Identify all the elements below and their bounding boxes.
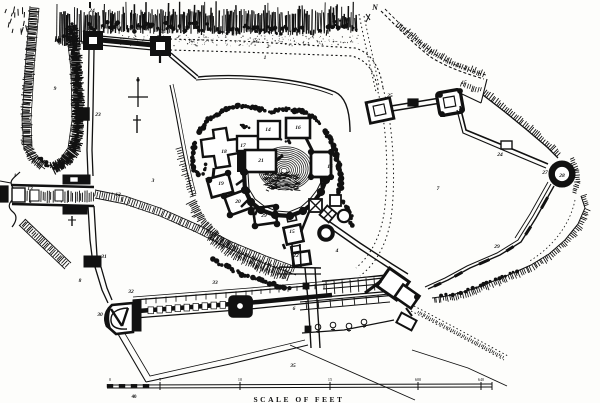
- svg-text:29: 29: [493, 244, 500, 250]
- svg-text:15: 15: [289, 229, 295, 235]
- svg-text:1: 1: [14, 173, 17, 179]
- svg-text:31: 31: [100, 254, 107, 260]
- svg-text:25: 25: [386, 93, 393, 99]
- svg-text:33: 33: [211, 280, 218, 286]
- svg-text:2: 2: [266, 44, 270, 50]
- svg-text:18: 18: [221, 149, 227, 155]
- svg-text:35: 35: [289, 363, 296, 369]
- svg-text:14: 14: [265, 127, 271, 133]
- svg-text:24: 24: [496, 152, 503, 158]
- svg-text:26: 26: [439, 113, 446, 119]
- svg-text:28: 28: [558, 173, 565, 179]
- svg-text:3: 3: [151, 178, 155, 184]
- svg-text:17: 17: [240, 143, 246, 149]
- svg-text:15: 15: [328, 377, 332, 382]
- svg-text:6: 6: [293, 306, 296, 312]
- svg-text:23: 23: [94, 112, 101, 118]
- svg-text:25: 25: [159, 29, 166, 35]
- svg-text:600: 600: [415, 377, 421, 382]
- svg-text:640: 640: [478, 377, 484, 382]
- svg-text:16: 16: [327, 164, 333, 170]
- svg-text:13: 13: [27, 186, 33, 192]
- svg-text:15: 15: [461, 80, 467, 86]
- svg-text:12: 12: [115, 192, 121, 198]
- svg-text:24: 24: [88, 8, 95, 14]
- svg-text:7: 7: [437, 186, 440, 192]
- svg-text:21: 21: [257, 158, 264, 164]
- svg-text:16: 16: [295, 125, 301, 131]
- svg-text:19: 19: [218, 181, 224, 187]
- svg-text:27: 27: [541, 170, 548, 176]
- svg-text:10: 10: [238, 377, 242, 382]
- svg-text:30: 30: [96, 312, 103, 318]
- svg-text:9: 9: [54, 86, 57, 92]
- svg-text:40: 40: [132, 395, 138, 400]
- svg-text:20: 20: [234, 199, 241, 205]
- svg-text:29: 29: [260, 213, 267, 219]
- svg-text:5: 5: [159, 377, 161, 382]
- svg-text:32: 32: [127, 289, 134, 295]
- svg-text:4: 4: [335, 248, 339, 254]
- svg-text:22: 22: [292, 253, 299, 259]
- svg-text:SCALE OF FEET: SCALE OF FEET: [254, 395, 345, 403]
- svg-text:1: 1: [264, 55, 267, 61]
- svg-text:0: 0: [109, 377, 111, 382]
- svg-text:8: 8: [79, 278, 82, 284]
